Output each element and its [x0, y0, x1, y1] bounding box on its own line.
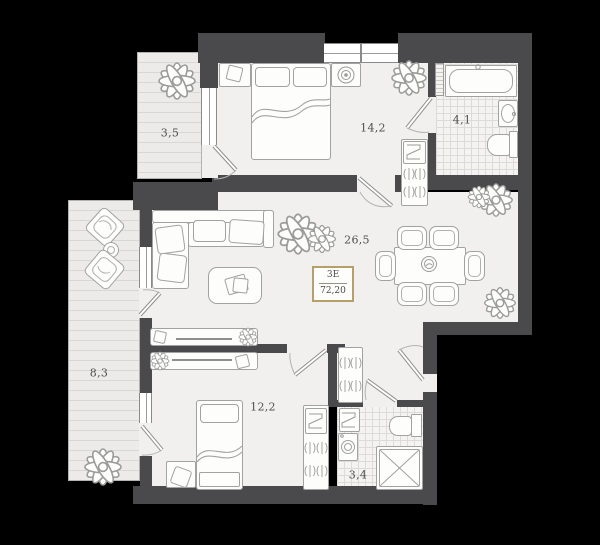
- tv-screen-living: [176, 338, 232, 340]
- dining-chair-left: [375, 251, 396, 281]
- wardrobe2-shelf-box: [305, 408, 327, 434]
- doorway-bedroom-main-balcony: [202, 145, 218, 178]
- wall-top-right: [398, 33, 532, 63]
- wardrobe-main-shelf-box: [403, 141, 426, 164]
- dining-table: [394, 247, 466, 285]
- tv-console-decor: [153, 330, 167, 344]
- toilet-second-tank: [411, 414, 422, 437]
- toilet-second-bowl: [389, 416, 412, 436]
- doorway-entrance: [423, 374, 437, 392]
- bathtub-basin: [449, 69, 513, 93]
- label-bedroom-second: 12,2: [250, 401, 276, 414]
- hall-closet: [338, 347, 363, 403]
- wall-bathroom-main-left-b: [428, 133, 436, 175]
- label-balcony-top: 3,5: [161, 127, 179, 140]
- toilet-main-tank: [509, 131, 518, 158]
- shower-tray: [379, 449, 420, 487]
- doorway-bedroom2: [287, 344, 327, 353]
- sink-cabinet-bath2: [339, 408, 360, 432]
- wall-junction: [133, 182, 218, 210]
- wall-hall-vertical: [328, 344, 337, 407]
- label-bedroom-main: 14,2: [360, 122, 386, 135]
- sofa-cushion-3: [193, 220, 226, 242]
- unit-badge: 3Е 72,20: [312, 266, 354, 302]
- vent-shaft: [435, 63, 444, 96]
- dining-chair-right: [464, 251, 485, 281]
- doorway-bedroom-main-bath: [428, 97, 436, 133]
- unit-type: 3Е: [314, 268, 352, 283]
- doorway-bedroom2-balcony: [139, 423, 152, 456]
- bed-main-pillow-left: [255, 67, 290, 87]
- window-bedroom2-left: [139, 393, 152, 423]
- label-bathroom-main: 4,1: [453, 114, 471, 127]
- tv-screen-bedroom2: [172, 359, 232, 361]
- sofa-cushion-2: [156, 252, 187, 283]
- doorway-bathroom2: [363, 400, 397, 407]
- washing-machine-door-inner: [344, 443, 352, 451]
- window-bedroom-main-balcony: [201, 88, 217, 145]
- wall-right: [518, 33, 532, 335]
- label-bathroom-second: 3,4: [349, 469, 367, 482]
- wall-bathroom-main-bottom: [428, 175, 518, 190]
- label-living: 26,5: [344, 234, 370, 247]
- wall-dining-bottom: [423, 322, 532, 335]
- doorway-bedroom-main-living: [357, 175, 395, 192]
- wall-bathroom2-top-b: [397, 400, 423, 407]
- wall-right-lower-a: [423, 335, 437, 374]
- window-living-left: [139, 247, 152, 288]
- sink-main-basin: [501, 104, 515, 123]
- bed-second-foot: [199, 472, 240, 487]
- sofa-cushion-4: [228, 219, 265, 245]
- balcony-top-floor: [137, 52, 202, 179]
- wall-bedroom-main-bottom-a: [212, 175, 357, 192]
- dining-chair-bottom-2: [429, 282, 459, 306]
- sofa-arm-right: [263, 210, 274, 248]
- coffee-table-book2: [232, 277, 248, 293]
- wall-left-c: [140, 456, 152, 496]
- dining-chair-top-2: [429, 226, 459, 250]
- nightstand-right: [331, 63, 361, 87]
- label-balcony-side: 8,3: [90, 367, 108, 380]
- bed-second-pillow: [200, 404, 239, 423]
- dining-chair-bottom-1: [397, 282, 427, 306]
- dining-chair-top-1: [397, 226, 427, 250]
- doorway-living-balcony: [139, 288, 152, 318]
- tv-console-living: [150, 328, 258, 346]
- unit-area: 72,20: [314, 284, 352, 299]
- bed-main-pillow-right: [293, 67, 327, 87]
- wall-bedroom-main-left: [200, 33, 218, 88]
- window-bedroom-main-divider: [360, 43, 362, 63]
- sofa-cushion-1: [154, 224, 185, 255]
- toilet-main-bowl: [487, 134, 511, 156]
- floor-plan: 3,5 14,2 4,1 26,5 8,3 12,2 3,4 3Е 72,20: [0, 0, 600, 545]
